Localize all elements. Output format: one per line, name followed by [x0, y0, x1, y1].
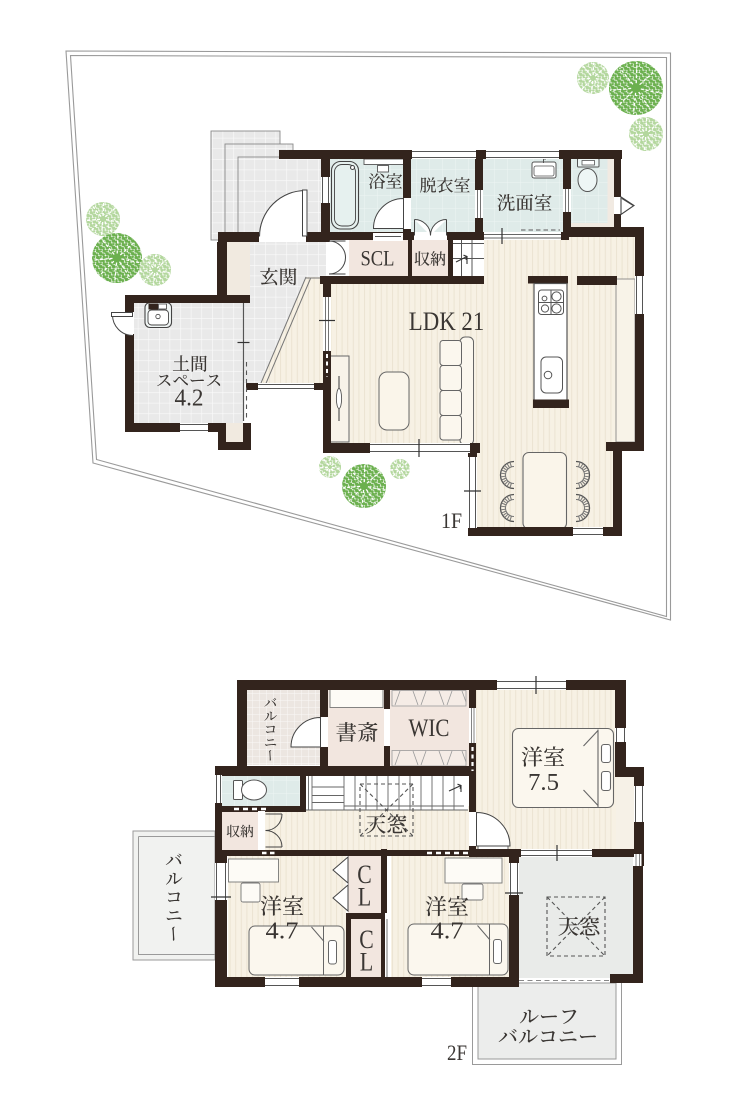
svg-text:L: L	[358, 883, 372, 912]
svg-text:4.7: 4.7	[266, 919, 299, 945]
svg-text:WIC: WIC	[409, 715, 450, 742]
svg-text:4.7: 4.7	[431, 919, 464, 945]
svg-text:2F: 2F	[447, 1040, 467, 1065]
svg-text:SCL: SCL	[361, 246, 395, 271]
svg-text:LDK 21: LDK 21	[409, 306, 485, 336]
svg-text:L: L	[360, 948, 374, 977]
svg-text:7.5: 7.5	[528, 770, 559, 796]
svg-text:4.2: 4.2	[175, 386, 204, 412]
svg-text:1F: 1F	[441, 508, 462, 533]
